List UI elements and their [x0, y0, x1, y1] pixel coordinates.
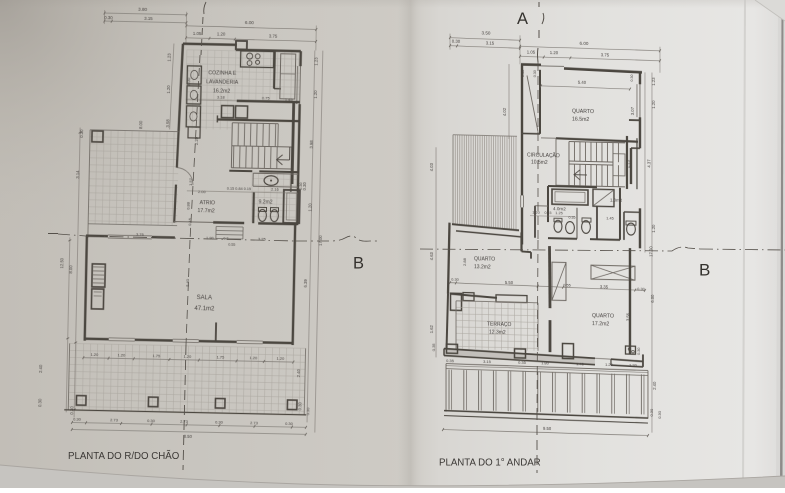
svg-text:17.2m2: 17.2m2	[592, 321, 609, 327]
svg-text:0.30: 0.30	[533, 70, 537, 77]
svg-text:3.35: 3.35	[600, 284, 609, 289]
svg-text:3.98: 3.98	[309, 140, 314, 149]
svg-text:6.00: 6.00	[245, 20, 254, 25]
svg-text:0.30: 0.30	[297, 401, 302, 410]
svg-text:3.58: 3.58	[165, 119, 170, 128]
svg-text:1.20: 1.20	[629, 363, 638, 368]
svg-text:1.20: 1.20	[307, 203, 312, 212]
svg-text:2.16: 2.16	[271, 187, 280, 192]
svg-text:1.20: 1.20	[166, 85, 171, 94]
svg-text:4.02: 4.02	[502, 107, 507, 116]
svg-text:1.45: 1.45	[576, 361, 585, 366]
svg-text:13.2m2: 13.2m2	[474, 264, 491, 270]
svg-text:1.20: 1.20	[532, 211, 539, 215]
svg-text:4.63: 4.63	[429, 251, 434, 260]
svg-text:1.75: 1.75	[152, 353, 161, 358]
svg-text:0.30: 0.30	[147, 418, 156, 423]
svg-text:1.23: 1.23	[314, 57, 319, 66]
svg-text:0.2: 0.2	[223, 237, 228, 241]
svg-text:2.88: 2.88	[462, 257, 467, 266]
svg-text:17.00: 17.00	[648, 246, 653, 257]
svg-text:1.20: 1.20	[651, 100, 656, 109]
svg-text:12.50: 12.50	[59, 257, 64, 268]
svg-text:0.30: 0.30	[104, 15, 113, 20]
svg-text:TERRAÇO: TERRAÇO	[487, 322, 512, 329]
svg-text:2.40: 2.40	[652, 381, 657, 390]
svg-text:1.90: 1.90	[206, 236, 213, 240]
svg-text:3.14: 3.14	[75, 170, 80, 179]
svg-text:4.03: 4.03	[429, 162, 434, 171]
svg-text:2.00: 2.00	[198, 189, 207, 194]
svg-text:0.30: 0.30	[637, 287, 644, 291]
svg-text:3.50: 3.50	[482, 30, 491, 35]
svg-text:0.30: 0.30	[215, 419, 224, 424]
svg-text:3.15: 3.15	[486, 40, 495, 45]
svg-text:0.55: 0.55	[228, 243, 235, 247]
svg-text:6.39: 6.39	[303, 279, 308, 288]
svg-text:8.00: 8.00	[68, 265, 73, 274]
svg-text:1.75: 1.75	[216, 354, 225, 359]
svg-text:3.15: 3.15	[144, 16, 153, 21]
svg-text:0.30: 0.30	[451, 278, 458, 282]
svg-text:0.55: 0.55	[563, 283, 570, 287]
svg-text:0.30: 0.30	[299, 182, 303, 189]
svg-text:9.50: 9.50	[543, 426, 552, 431]
svg-text:1.62: 1.62	[429, 324, 434, 333]
svg-text:3.18: 3.18	[217, 94, 226, 99]
svg-text:0.30: 0.30	[637, 348, 641, 355]
svg-text:B: B	[699, 261, 710, 280]
svg-text:3.75: 3.75	[601, 52, 610, 57]
svg-text:5.40: 5.40	[185, 278, 190, 287]
svg-text:1.20: 1.20	[651, 224, 656, 233]
svg-text:6.00: 6.00	[650, 294, 655, 303]
svg-text:17.7m2: 17.7m2	[197, 208, 215, 214]
svg-text:1.05: 1.05	[193, 31, 202, 36]
svg-text:8.00: 8.00	[138, 120, 143, 129]
svg-text:1.20: 1.20	[249, 355, 258, 360]
svg-text:1.20: 1.20	[313, 90, 318, 99]
svg-text:0.30: 0.30	[452, 39, 461, 44]
svg-text:1.20: 1.20	[276, 356, 285, 361]
svg-text:B: B	[353, 255, 364, 273]
svg-text:0.15: 0.15	[544, 211, 551, 215]
svg-text:4.37: 4.37	[646, 159, 651, 168]
svg-text:ATRIO: ATRIO	[200, 200, 216, 206]
svg-text:1.45: 1.45	[606, 216, 613, 220]
svg-text:1.23: 1.23	[651, 77, 656, 86]
svg-text:0.15 0.84 0.15: 0.15 0.84 0.15	[227, 187, 251, 192]
svg-text:PLANTA DO R/DO CHÃO: PLANTA DO R/DO CHÃO	[68, 451, 180, 462]
svg-text:3.75: 3.75	[269, 34, 278, 39]
svg-text:1.20: 1.20	[605, 362, 614, 367]
svg-text:3.07: 3.07	[630, 106, 635, 115]
svg-text:0.30: 0.30	[37, 398, 42, 407]
svg-text:PLANTA DO 1° ANDAR: PLANTA DO 1° ANDAR	[439, 458, 541, 469]
svg-text:10.5m2: 10.5m2	[531, 160, 548, 166]
svg-text:3.15: 3.15	[483, 359, 492, 364]
svg-text:1.20: 1.20	[117, 352, 126, 357]
svg-text:3.25: 3.25	[258, 236, 267, 241]
svg-text:QUARTO: QUARTO	[592, 313, 614, 320]
svg-text:2.40: 2.40	[38, 364, 43, 373]
svg-text:1.20: 1.20	[217, 31, 226, 36]
svg-text:2.73: 2.73	[250, 420, 259, 425]
svg-text:1.20: 1.20	[183, 354, 192, 359]
svg-text:5.50: 5.50	[505, 280, 514, 285]
svg-text:CIRCULAÇÃO: CIRCULAÇÃO	[527, 152, 560, 160]
svg-text:0.35: 0.35	[568, 216, 575, 220]
svg-text:3.76: 3.76	[136, 232, 145, 237]
svg-text:0.88: 0.88	[185, 201, 190, 210]
svg-text:47.1m2: 47.1m2	[194, 306, 215, 312]
svg-text:1.23: 1.23	[167, 53, 172, 62]
svg-text:0.35: 0.35	[431, 343, 436, 352]
svg-text:0.35: 0.35	[518, 360, 527, 365]
svg-text:1.80: 1.80	[541, 360, 550, 365]
svg-text:0.30: 0.30	[305, 407, 310, 416]
svg-text:QUARTO: QUARTO	[572, 109, 594, 116]
svg-text:0.30: 0.30	[630, 75, 634, 82]
svg-text:16.5m2: 16.5m2	[572, 117, 589, 123]
svg-text:0.30: 0.30	[79, 129, 84, 138]
svg-text:0.75: 0.75	[262, 95, 271, 100]
svg-text:SALA: SALA	[197, 295, 212, 301]
svg-text:QUARTO: QUARTO	[474, 256, 495, 263]
svg-text:0.30: 0.30	[285, 421, 294, 426]
svg-text:1.25: 1.25	[555, 211, 562, 215]
svg-text:1.20: 1.20	[550, 50, 559, 55]
svg-text:8.50: 8.50	[184, 434, 193, 439]
svg-text:COZINHA E: COZINHA E	[208, 70, 237, 77]
svg-text:1.20: 1.20	[90, 352, 99, 357]
svg-text:0.30: 0.30	[73, 416, 82, 421]
svg-text:0.35: 0.35	[446, 358, 455, 363]
svg-text:A: A	[517, 10, 528, 28]
svg-text:6.00: 6.00	[580, 41, 589, 46]
svg-text:0.30: 0.30	[649, 408, 654, 417]
svg-text:2.73: 2.73	[110, 417, 119, 422]
svg-text:1.05: 1.05	[527, 49, 536, 54]
svg-text:9.2m2: 9.2m2	[259, 199, 273, 205]
svg-text:3.80: 3.80	[138, 7, 147, 12]
svg-text:17.00: 17.00	[318, 235, 323, 246]
svg-text:2.40: 2.40	[296, 368, 301, 377]
svg-text:12.3m2: 12.3m2	[489, 330, 506, 336]
svg-text:5.40: 5.40	[578, 80, 587, 85]
svg-text:LAVANDERIA: LAVANDERIA	[206, 79, 239, 86]
svg-text:1.57: 1.57	[188, 177, 193, 186]
svg-text:0.30: 0.30	[657, 410, 662, 419]
